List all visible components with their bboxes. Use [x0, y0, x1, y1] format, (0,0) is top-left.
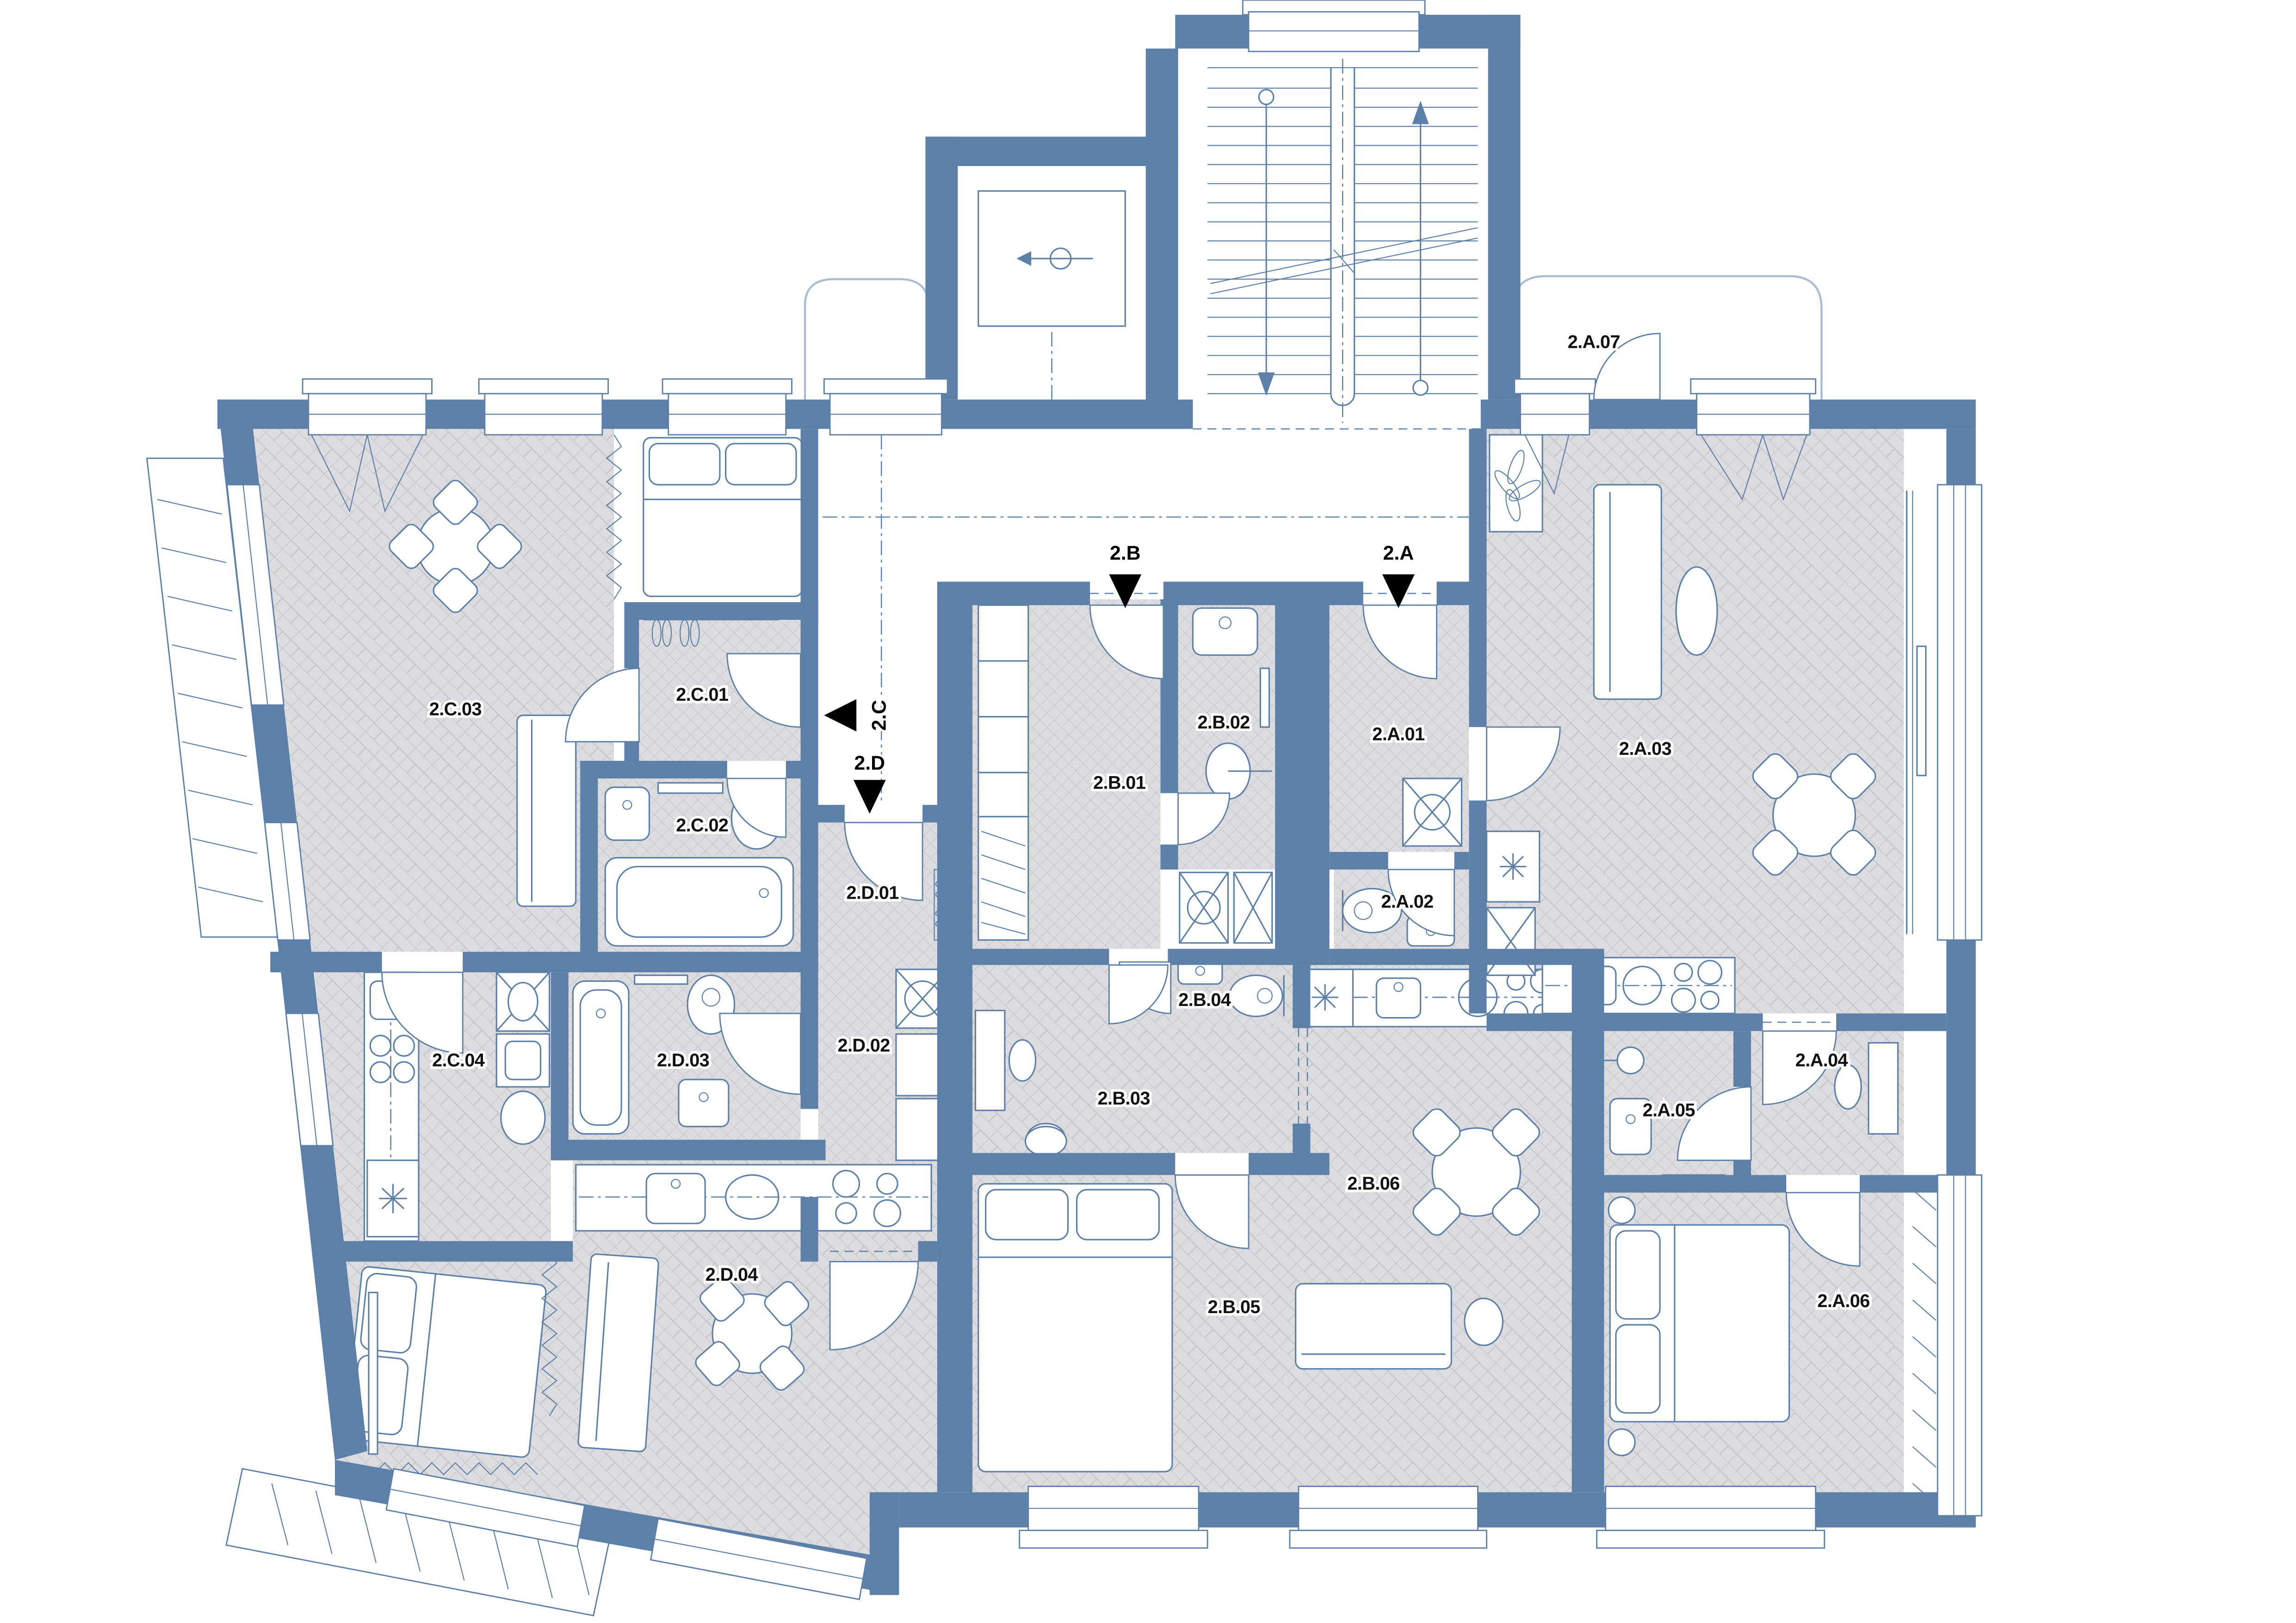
floor-plan: 2.C.03 2.C.01 2.C.02 2.C.04 2.D.01 2.D.0…	[0, 0, 2296, 1623]
svg-text:2.A: 2.A	[1383, 542, 1414, 564]
sink-icon	[1193, 608, 1257, 655]
room-label-2d02: 2.D.02	[838, 1036, 890, 1056]
sofa-icon	[578, 1254, 659, 1452]
svg-text:2.C: 2.C	[868, 700, 891, 731]
room-label-2a06: 2.A.06	[1817, 1291, 1869, 1311]
room-label-2b02: 2.B.02	[1197, 712, 1250, 733]
room-2b01-wardrobe	[978, 605, 1028, 940]
room-label-2d01: 2.D.01	[847, 882, 899, 903]
room-label-2a02: 2.A.02	[1381, 891, 1433, 912]
room-label-2b05: 2.B.05	[1208, 1297, 1260, 1317]
fridge-icon	[367, 1160, 419, 1237]
chair-icon	[1009, 1040, 1035, 1081]
kitchen-row	[1542, 957, 1735, 1013]
french-window	[1937, 485, 1981, 940]
window	[1243, 0, 1425, 51]
kitchen-sink-icon	[646, 1173, 705, 1223]
shower-icon	[1617, 1047, 1644, 1074]
shelf-icon	[658, 783, 723, 793]
room-2c-bedroom-furniture	[644, 438, 802, 596]
window	[662, 379, 792, 435]
bathtub-icon	[573, 981, 629, 1134]
washing-machine-icon	[496, 972, 549, 1031]
desk-icon	[975, 1011, 1005, 1111]
window	[1597, 1487, 1825, 1548]
kitchen-sink-icon	[1376, 978, 1420, 1018]
room-2b06-floor	[1276, 965, 1572, 1492]
ottoman-icon	[1465, 1298, 1503, 1345]
window	[303, 379, 432, 435]
radiator-icon	[369, 1292, 378, 1454]
room-label-2a05: 2.A.05	[1643, 1100, 1695, 1120]
plant-icon	[1490, 435, 1543, 532]
room-label-2b01: 2.B.01	[1093, 772, 1145, 793]
radiator-icon	[1917, 646, 1926, 775]
nightstand-icon	[1609, 1197, 1635, 1223]
room-label-2a07: 2.A.07	[1568, 332, 1620, 352]
room-label-2c02: 2.C.02	[676, 815, 728, 835]
room-label-2b06: 2.B.06	[1347, 1173, 1399, 1194]
room-label-2a03: 2.A.03	[1619, 739, 1671, 759]
room-label-2c04: 2.C.04	[432, 1050, 485, 1070]
sofa-icon	[1594, 485, 1661, 699]
sink-icon	[679, 1080, 729, 1127]
shaft-icon	[1234, 872, 1272, 943]
desk-icon	[1869, 1043, 1898, 1134]
fridge-icon	[1486, 831, 1539, 901]
sofa-icon	[1296, 1284, 1452, 1369]
stool-icon	[1025, 1127, 1066, 1156]
room-label-2b03: 2.B.03	[1098, 1088, 1150, 1109]
room-label-2a01: 2.A.01	[1372, 724, 1424, 744]
room-label-2c03: 2.C.03	[429, 699, 482, 720]
nightstand-icon	[1609, 1429, 1635, 1456]
window	[1020, 1487, 1207, 1548]
window	[479, 379, 608, 435]
svg-text:2.B: 2.B	[1110, 542, 1141, 564]
room-2a03-floor	[1486, 429, 1904, 1013]
coffee-table-icon	[1676, 567, 1717, 655]
french-window	[1937, 1175, 1981, 1516]
room-label-2d03: 2.D.03	[657, 1050, 709, 1070]
shaft-icon	[1486, 907, 1535, 975]
room-label-2b04: 2.B.04	[1178, 990, 1231, 1010]
svg-text:2.D: 2.D	[854, 752, 885, 774]
chair-icon	[1835, 1065, 1861, 1109]
shelf-icon	[635, 975, 687, 984]
sofa-icon	[517, 716, 576, 907]
window	[1691, 379, 1816, 435]
kitchen-row	[576, 1165, 931, 1231]
shelf-icon	[1260, 668, 1269, 727]
washing-machine-icon	[1403, 778, 1461, 846]
window	[824, 379, 947, 435]
bathtub-icon	[605, 858, 793, 946]
window	[1290, 1487, 1486, 1548]
room-2a06-furniture	[1609, 1197, 1789, 1456]
window	[1515, 379, 1596, 435]
washing-machine-icon	[1180, 872, 1228, 943]
room-label-2d04: 2.D.04	[706, 1265, 758, 1285]
room-label-2a04: 2.A.04	[1795, 1050, 1848, 1070]
laundry-basin-icon	[501, 1091, 545, 1144]
sink-icon	[605, 787, 649, 840]
toilet-icon	[1230, 975, 1282, 1017]
room-label-2c01: 2.C.01	[676, 685, 728, 705]
